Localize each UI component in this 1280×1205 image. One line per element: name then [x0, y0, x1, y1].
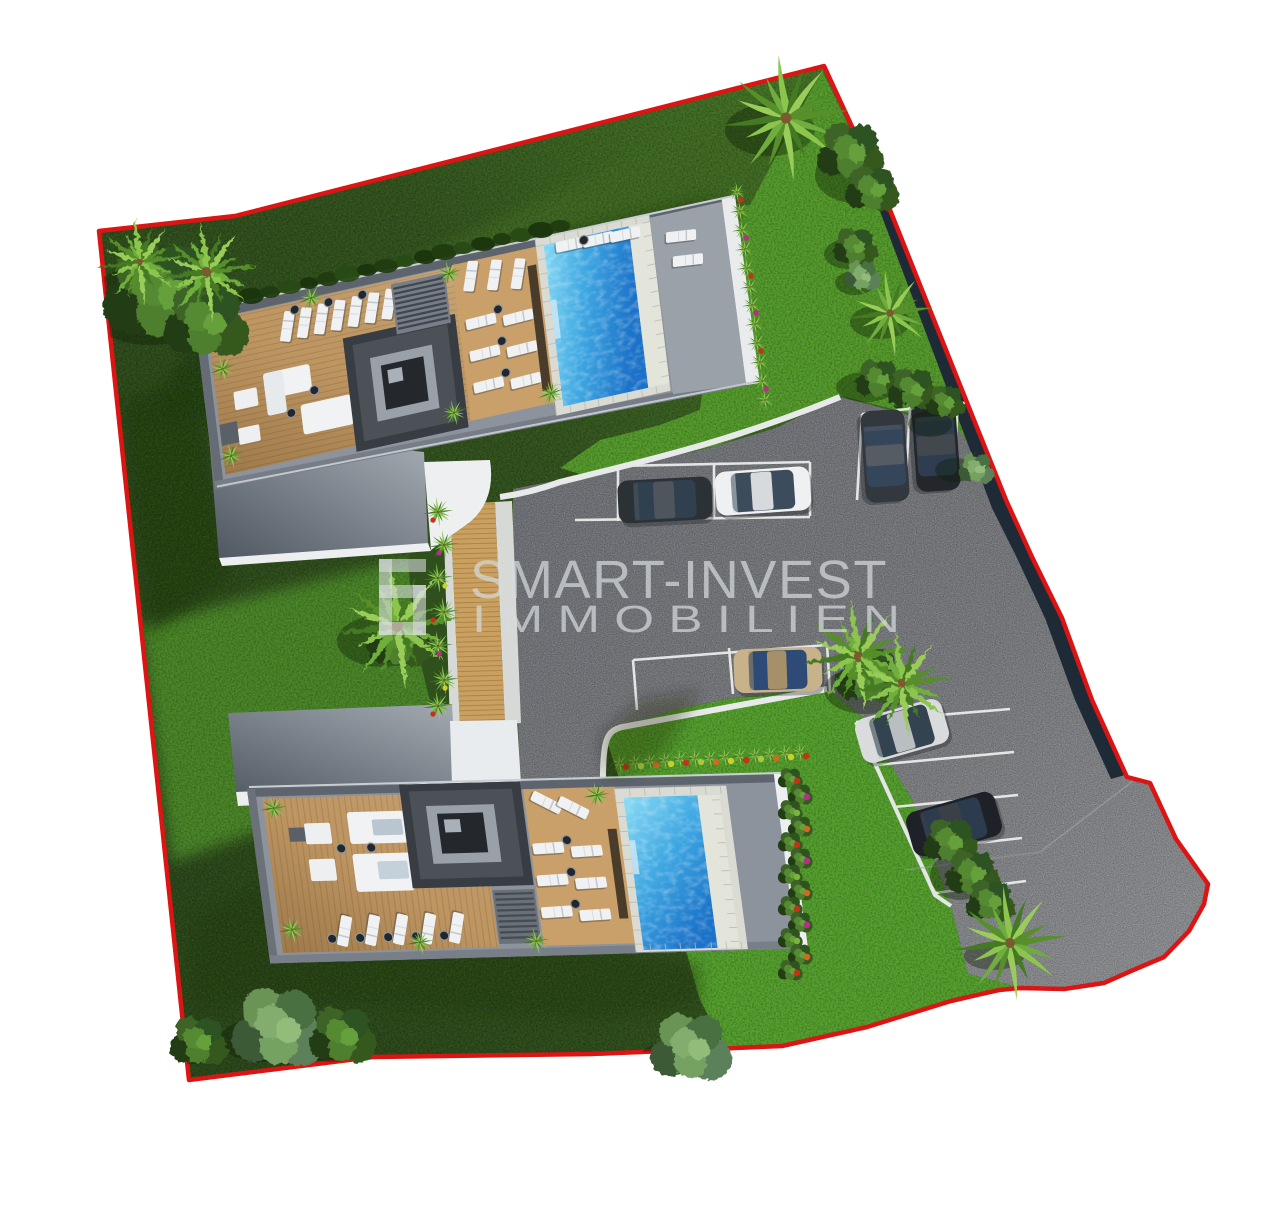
svg-text:I M M O B I L I E N: I M M O B I L I E N [472, 599, 900, 641]
